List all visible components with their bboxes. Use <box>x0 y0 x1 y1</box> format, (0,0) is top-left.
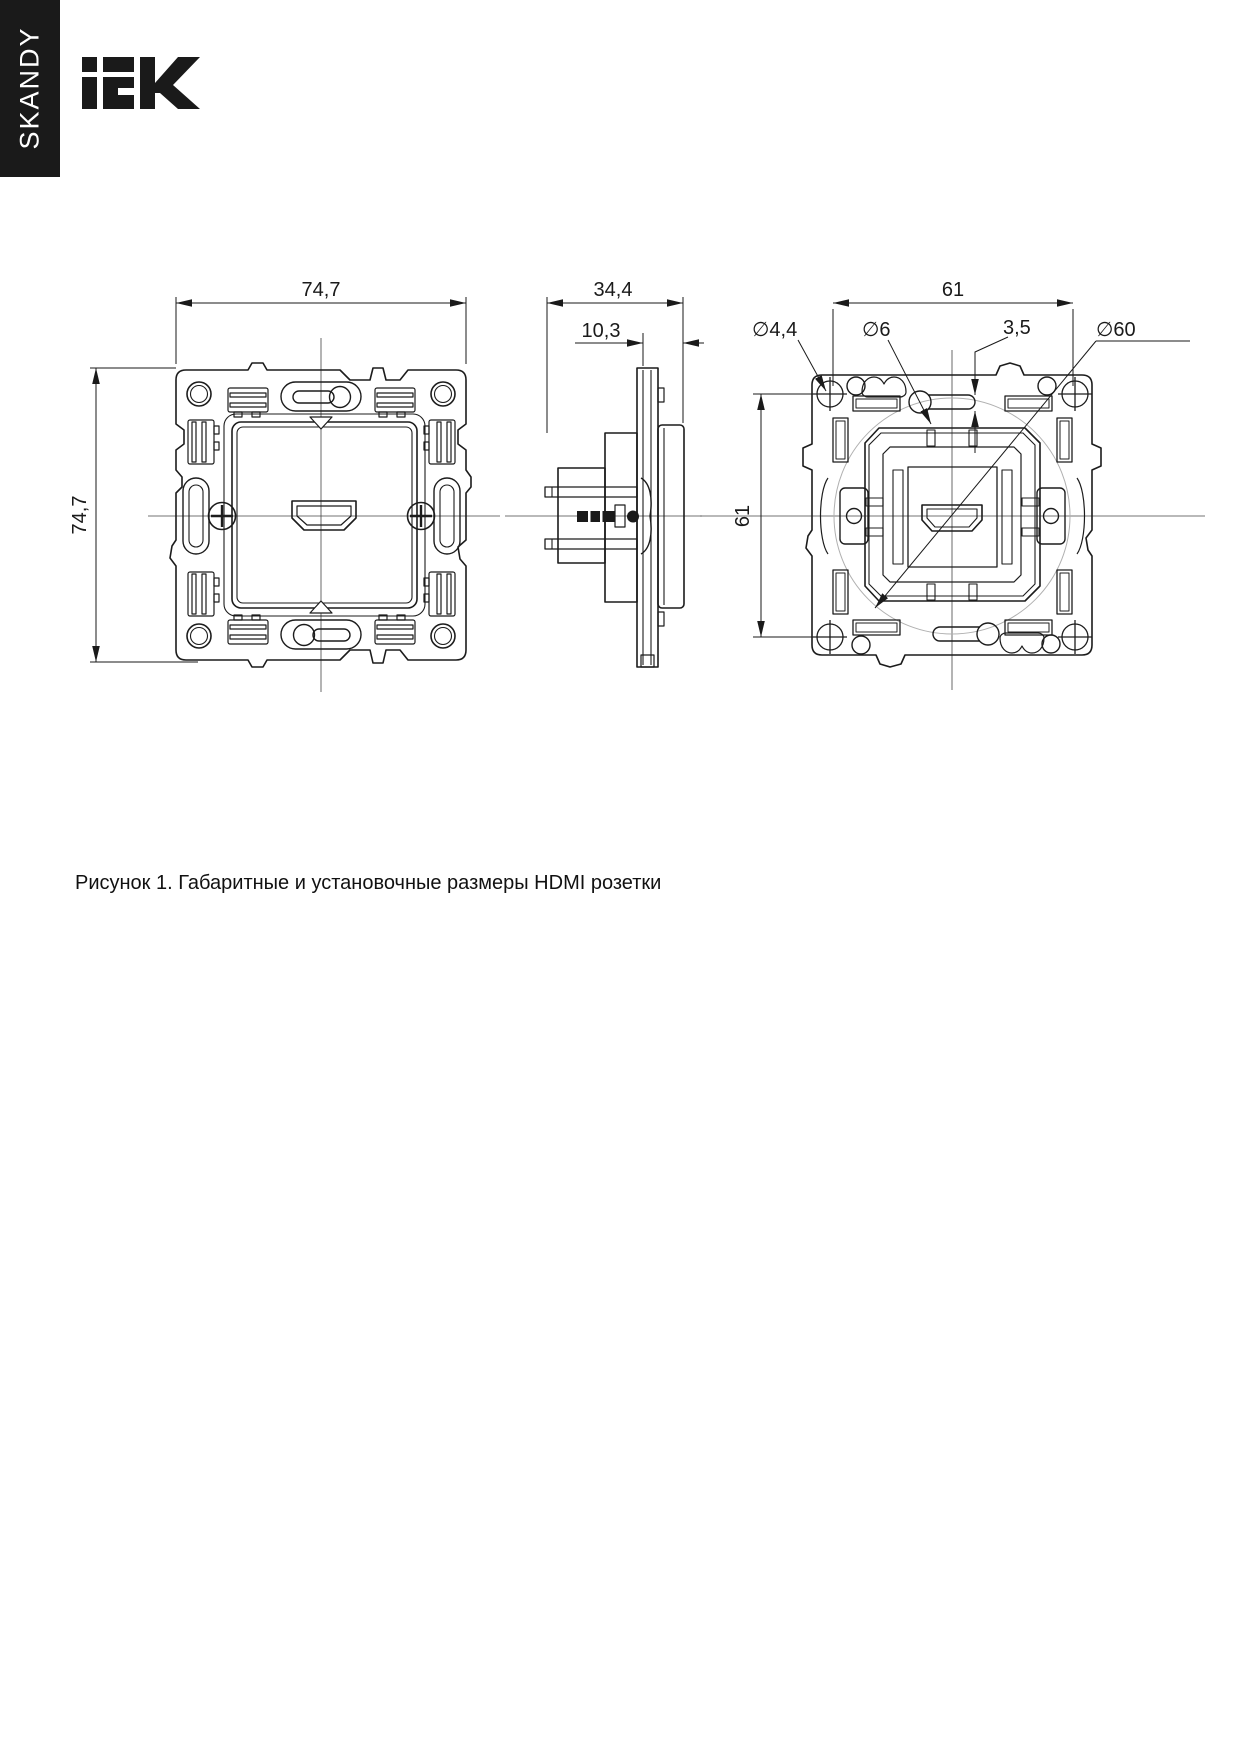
front-hdmi-connector <box>292 501 356 530</box>
side-screw-shaft <box>577 510 639 523</box>
technical-drawing: 74,7 74,7 <box>0 0 1239 780</box>
back-dim-center-hole: ∅6 <box>862 319 891 341</box>
side-view: 34,4 10,3 <box>505 279 704 667</box>
front-view: 74,7 74,7 <box>69 279 500 692</box>
back-small-holes <box>847 377 1060 654</box>
back-dim-screw-hole: ∅4,4 <box>752 319 797 341</box>
back-corner-screws <box>813 377 1092 654</box>
front-cover-plate <box>232 422 417 608</box>
back-dim-slot-width: 3,5 <box>1003 317 1031 339</box>
figure-caption: Рисунок 1. Габаритные и установочные раз… <box>75 872 661 895</box>
side-dim-depth: 34,4 <box>594 279 633 301</box>
back-dim-mount-circle: ∅60 <box>1096 319 1136 341</box>
front-dim-height: 74,7 <box>69 496 91 535</box>
back-dim-width: 61 <box>942 279 964 301</box>
back-dim-height: 61 <box>732 505 754 527</box>
side-dimensions <box>547 297 704 433</box>
side-face-plate <box>658 425 684 608</box>
side-dim-protrusion: 10,3 <box>582 320 621 342</box>
back-view-centerlines <box>700 350 1205 690</box>
back-dimensions <box>753 303 1190 637</box>
front-frame-opening <box>224 414 425 616</box>
back-view: 61 61 ∅4,4 ∅6 3,5 ∅60 <box>700 279 1205 690</box>
front-dim-width: 74,7 <box>302 279 341 301</box>
